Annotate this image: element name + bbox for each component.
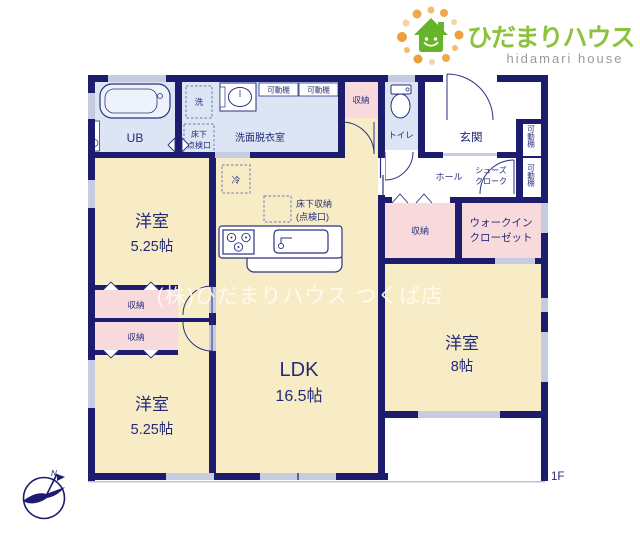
ground-line <box>88 481 545 483</box>
compass-icon: N <box>23 469 65 519</box>
label-toilet: トイレ <box>388 130 414 140</box>
label-ub: UB <box>127 131 144 145</box>
toilet-icon <box>391 85 411 118</box>
sink-icon <box>274 230 328 253</box>
bathtub-icon <box>100 84 170 118</box>
label-laundry: 洗面脱衣室 <box>235 131 285 144</box>
label-entrance: 玄関 <box>460 130 483 144</box>
front-door <box>447 74 493 120</box>
label-wic-2: クローゼット <box>470 232 533 244</box>
label-shelf-v1: 可動棚 <box>526 125 535 149</box>
label-western-8: 洋室 <box>445 334 479 353</box>
label-size-8: 8帖 <box>451 358 474 375</box>
label-size-525-bottom: 5.25帖 <box>131 421 174 438</box>
label-hall: ホール <box>435 172 462 182</box>
label-size-165: 16.5帖 <box>275 387 322 405</box>
sliding-door <box>378 158 385 195</box>
label-western-bottom: 洋室 <box>135 395 169 414</box>
label-hatch-2: 点検口 <box>187 140 211 150</box>
label-shelf-1: 可動棚 <box>267 85 290 95</box>
floor-label: 1F <box>551 471 564 483</box>
label-size-525-top: 5.25帖 <box>131 238 174 255</box>
brand-logo: ひだまりハウス hidamari house <box>397 7 635 67</box>
label-shoes-2: クローク <box>475 177 507 186</box>
label-ufs-2: (点検口) <box>296 211 329 222</box>
label-wic-1: ウォークイン <box>470 217 533 229</box>
label-shelf-2: 可動棚 <box>307 85 330 95</box>
label-ufs-1: 床下収納 <box>296 198 332 209</box>
compass-n-label: N <box>51 469 57 478</box>
watermark: (株)ひだまりハウス つくば店 <box>157 285 443 308</box>
house-icon <box>414 18 448 52</box>
floorplan-page: UB 洗 床下 点検口 洗面脱衣室 可動棚 可動棚 収納 トイレ 玄関 ホール … <box>0 0 640 533</box>
label-western-top: 洋室 <box>135 212 169 231</box>
toilet-door <box>385 152 413 180</box>
stove-icon <box>223 230 254 254</box>
vanity-sink-icon <box>220 83 256 111</box>
label-shoes-1: シューズ <box>475 165 507 175</box>
floorplan-image: UB 洗 床下 点検口 洗面脱衣室 可動棚 可動棚 収納 トイレ 玄関 ホール … <box>0 0 640 533</box>
label-hatch-1: 床下 <box>191 129 207 139</box>
label-storage-hall: 収納 <box>411 225 429 236</box>
label-ldk: LDK <box>280 359 320 381</box>
label-storage-pantry: 収納 <box>352 95 369 105</box>
label-shelf-v2: 可動棚 <box>526 164 535 188</box>
brand-name-jp: ひだまりハウス <box>467 24 635 52</box>
brand-name-en: hidamari house <box>507 51 624 66</box>
label-fridge: 冷 <box>232 175 241 185</box>
label-washer: 洗 <box>195 97 204 107</box>
label-storage-l2: 収納 <box>127 332 144 342</box>
label-storage-l1: 収納 <box>127 300 144 310</box>
